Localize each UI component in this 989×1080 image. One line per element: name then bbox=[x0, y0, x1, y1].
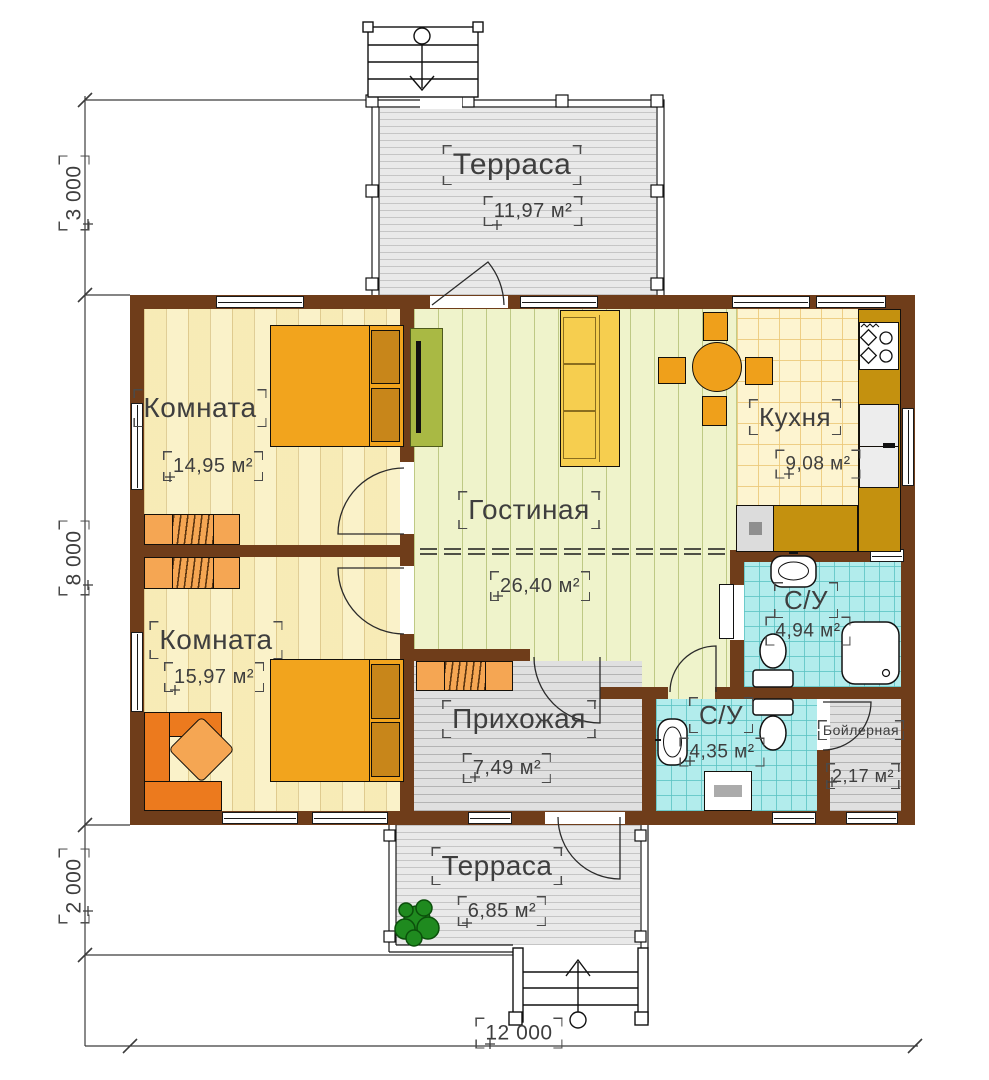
room-area-boiler: 2,17 м² bbox=[826, 763, 900, 789]
kitchen-counter-south bbox=[773, 505, 858, 552]
hall-wardrobe bbox=[416, 661, 513, 691]
tv-stand bbox=[410, 328, 443, 447]
door-gap-terrace-top bbox=[430, 296, 508, 308]
wall-hall-bath bbox=[642, 694, 656, 811]
wall-living-bath-2 bbox=[730, 640, 744, 694]
window-kitchen-north-2 bbox=[816, 296, 886, 308]
room-area-hallway: 7,49 м² bbox=[463, 753, 551, 783]
sofa-cushion bbox=[563, 364, 596, 411]
room-label-bath-top: С/У bbox=[774, 582, 838, 618]
bed-top bbox=[270, 325, 404, 447]
dimension-label-left-middle: 8 000 bbox=[59, 520, 90, 595]
room-terrace-bottom-floor bbox=[396, 825, 640, 945]
dining-table bbox=[692, 342, 742, 392]
room-label-terrace-top: Терраса bbox=[443, 145, 582, 185]
bed-bottom bbox=[270, 659, 404, 782]
window-kitchen-north-1 bbox=[732, 296, 810, 308]
sofa-cushion bbox=[563, 411, 596, 459]
washing-machine-slot bbox=[714, 785, 742, 797]
dining-chair-east bbox=[745, 357, 773, 385]
wall-outer-left bbox=[130, 295, 144, 825]
room-area-bath-bottom: 4,35 м² bbox=[679, 738, 764, 767]
hall-wardrobe-hatch bbox=[444, 662, 486, 690]
room-area-kitchen: 9,08 м² bbox=[775, 450, 860, 479]
window-boiler-south bbox=[846, 812, 898, 824]
window-room-bottom-south-2 bbox=[312, 812, 388, 824]
wall-bath-bottom-top-1 bbox=[600, 687, 668, 699]
window-hall-south bbox=[468, 812, 512, 824]
room-label-hallway: Прихожая bbox=[442, 700, 596, 738]
dresser-bottom bbox=[144, 557, 240, 589]
room-boiler-floor bbox=[830, 699, 901, 811]
bed-top-pillow-1 bbox=[371, 330, 400, 384]
window-bath-bottom-south bbox=[772, 812, 816, 824]
tv bbox=[416, 341, 421, 433]
room-area-room-top: 14,95 м² bbox=[163, 451, 263, 481]
room-label-living: Гостиная bbox=[458, 491, 600, 529]
fridge-top bbox=[859, 404, 899, 447]
stove bbox=[859, 322, 899, 370]
wall-living-bath-1 bbox=[730, 562, 744, 585]
window-kitchen-east bbox=[902, 408, 914, 486]
bed-bottom-pillow-1 bbox=[371, 664, 400, 719]
dining-chair-south bbox=[702, 396, 727, 426]
room-label-boiler: Бойлерная bbox=[818, 720, 904, 740]
wall-rooms-living-2 bbox=[400, 534, 414, 566]
stairs-bottom bbox=[509, 948, 648, 1028]
door-gap-hall-terrace bbox=[545, 812, 625, 824]
dimension-label-left-bottom: 2 000 bbox=[59, 848, 90, 923]
bed-bottom-pillow-2 bbox=[371, 722, 400, 777]
room-label-bath-bottom: С/У bbox=[689, 697, 753, 733]
dresser-top bbox=[144, 514, 240, 545]
room-area-room-bottom: 15,97 м² bbox=[164, 662, 264, 692]
window-room-bottom-south-1 bbox=[222, 812, 298, 824]
window-room-bottom-west bbox=[131, 632, 143, 712]
bed-top-split bbox=[369, 326, 370, 446]
door-leaf-bath-top bbox=[719, 584, 734, 639]
window-room-top-north bbox=[216, 296, 304, 308]
stairs-top bbox=[363, 22, 483, 97]
dining-chair-north bbox=[703, 312, 728, 341]
washing-machine bbox=[704, 771, 752, 811]
room-label-terrace-bottom: Терраса bbox=[432, 847, 563, 885]
dimension-label-left-top: 3 000 bbox=[59, 155, 90, 230]
dresser-top-hatch bbox=[172, 515, 214, 544]
bed-bottom-split bbox=[369, 660, 370, 781]
dimension-label-bottom: 12 000 bbox=[475, 1018, 562, 1049]
room-area-bath-top: 4,94 м² bbox=[765, 617, 850, 646]
window-living-north bbox=[520, 296, 598, 308]
kitchen-living-divider bbox=[736, 309, 737, 505]
room-label-room-top: Комната bbox=[133, 389, 266, 427]
dining-chair-west bbox=[658, 357, 686, 384]
wall-between-rooms bbox=[144, 545, 400, 557]
room-label-kitchen: Кухня bbox=[749, 399, 841, 435]
sofa bbox=[560, 310, 620, 467]
room-area-living: 26,40 м² bbox=[490, 571, 590, 601]
dresser-bottom-hatch bbox=[172, 558, 214, 588]
room-label-room-bottom: Комната bbox=[149, 621, 282, 659]
fridge-handle bbox=[883, 443, 895, 448]
fridge-bottom bbox=[859, 446, 899, 488]
bed-top-pillow-2 bbox=[371, 388, 400, 442]
room-area-terrace-bottom: 6,85 м² bbox=[458, 896, 546, 926]
desk-bottom-arm bbox=[144, 781, 222, 811]
wall-hall-top bbox=[414, 649, 530, 661]
floor-plan: Терраса 11,97 м² Комната 14,95 м² Гостин… bbox=[0, 0, 989, 1080]
sofa-cushion bbox=[563, 317, 596, 364]
room-area-terrace-top: 11,97 м² bbox=[484, 196, 583, 226]
dishwasher-detail bbox=[749, 522, 762, 535]
dishwasher bbox=[736, 505, 774, 552]
sofa-backrest bbox=[599, 315, 619, 462]
